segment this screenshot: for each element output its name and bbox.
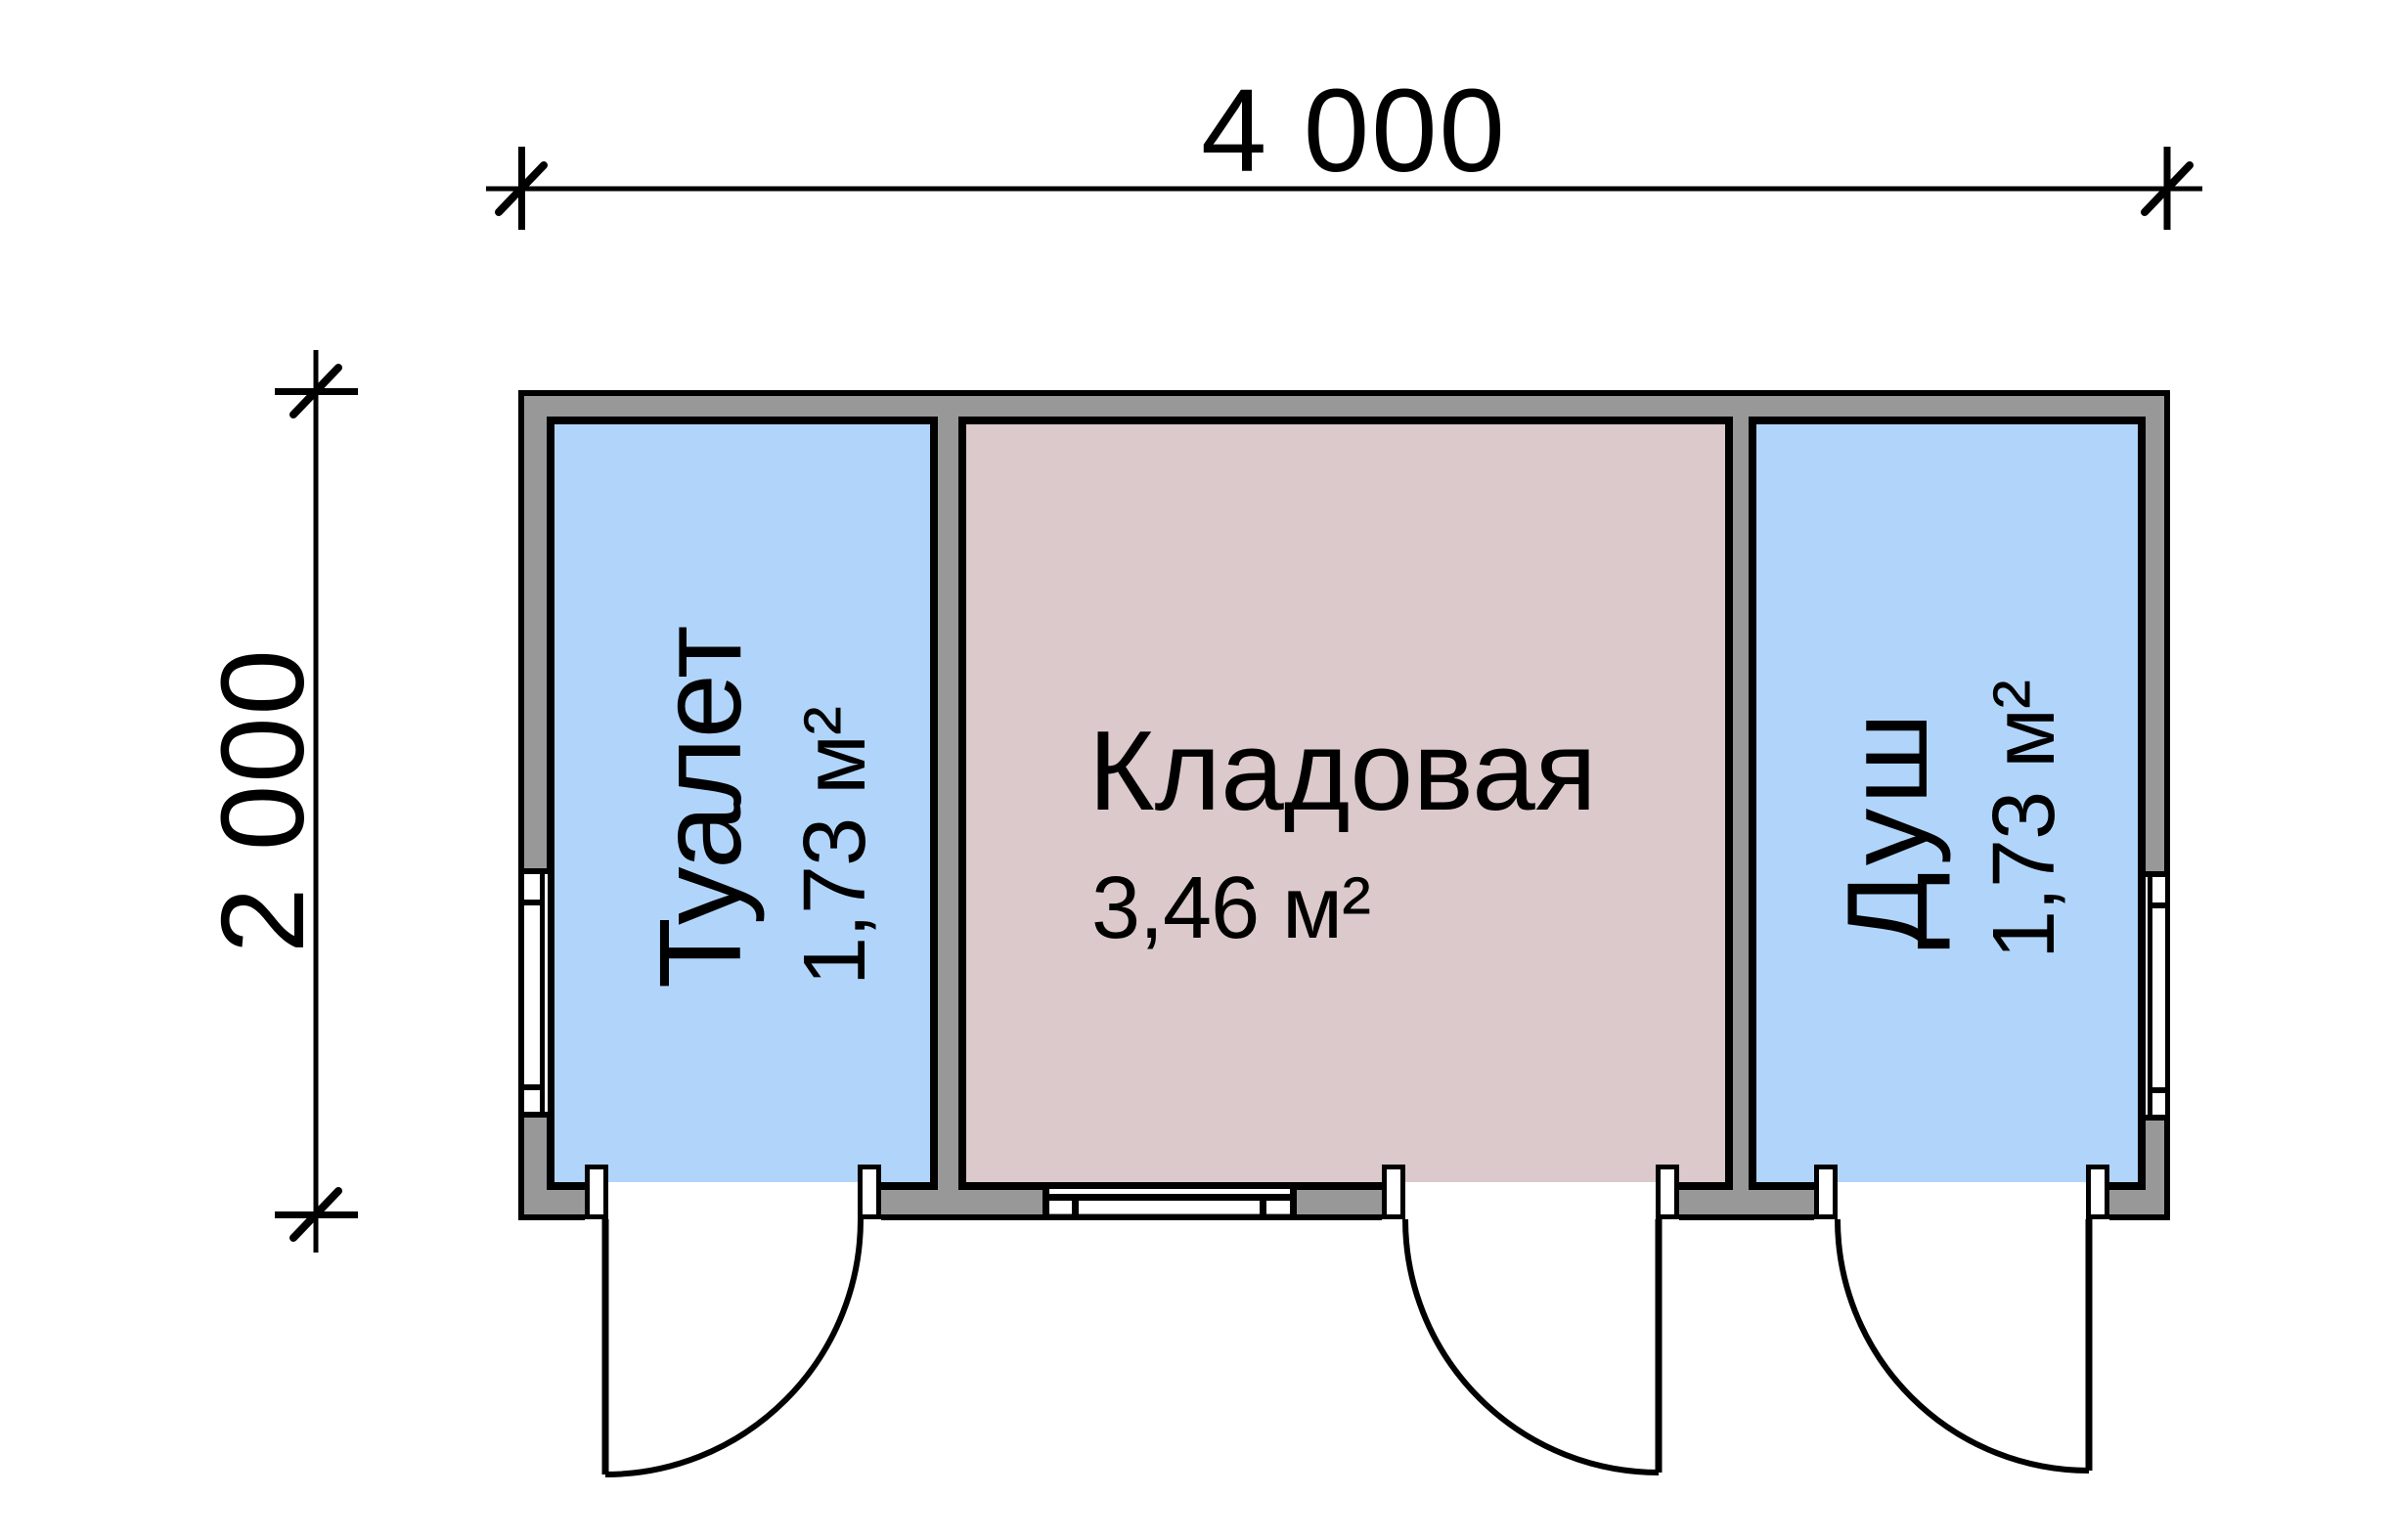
svg-text:1,73 м²: 1,73 м² [1975, 681, 2073, 959]
svg-text:Кладовая: Кладовая [1088, 707, 1597, 834]
svg-text:Душ: Душ [1823, 709, 1951, 949]
svg-text:1,73 м²: 1,73 м² [786, 707, 884, 986]
svg-text:2 000: 2 000 [196, 647, 329, 953]
svg-text:3,46 м²: 3,46 м² [1091, 859, 1370, 957]
svg-text:4 000: 4 000 [1201, 64, 1507, 197]
svg-text:Туалет: Туалет [636, 626, 766, 989]
